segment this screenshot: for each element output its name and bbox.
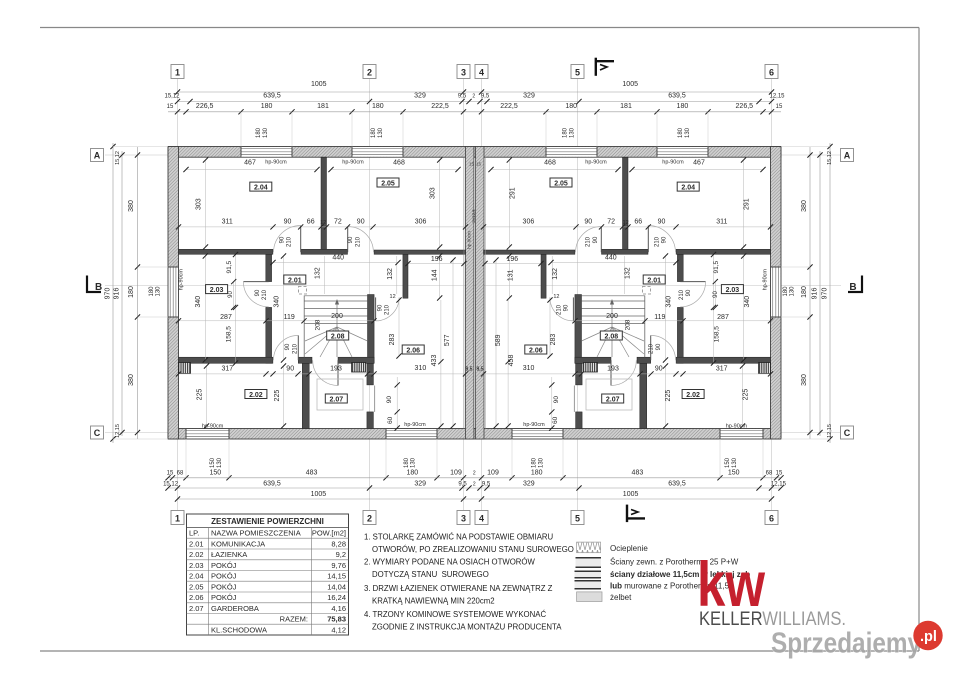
svg-text:180: 180 [531, 470, 543, 477]
svg-text:291: 291 [744, 198, 751, 210]
svg-text:90: 90 [255, 289, 261, 296]
svg-text:200: 200 [331, 313, 343, 320]
svg-text:91,5: 91,5 [226, 260, 233, 273]
svg-text:hp-90cm: hp-90cm [726, 423, 748, 429]
svg-text:226,5: 226,5 [196, 103, 214, 110]
svg-text:144: 144 [432, 269, 439, 281]
svg-text:9,5: 9,5 [458, 481, 467, 487]
svg-text:hp-90cm: hp-90cm [585, 160, 607, 166]
svg-text:15: 15 [167, 471, 174, 477]
svg-text:340: 340 [744, 296, 751, 308]
svg-text:2.07: 2.07 [189, 604, 204, 613]
svg-text:130: 130 [732, 457, 738, 468]
svg-text:196: 196 [431, 256, 443, 263]
svg-text:311: 311 [222, 218, 233, 225]
svg-text:90: 90 [357, 218, 365, 225]
svg-text:9,5: 9,5 [477, 367, 484, 373]
svg-text:467: 467 [244, 160, 256, 167]
svg-text:287: 287 [717, 314, 729, 321]
svg-text:150: 150 [728, 470, 740, 477]
svg-text:12,15: 12,15 [771, 481, 787, 487]
svg-text:109: 109 [450, 470, 462, 477]
svg-text:483: 483 [632, 470, 644, 477]
svg-text:90: 90 [228, 291, 234, 298]
svg-text:222,5: 222,5 [500, 103, 518, 110]
svg-text:15,12: 15,12 [827, 151, 833, 165]
svg-text:15: 15 [167, 104, 174, 110]
svg-text:91,5: 91,5 [713, 260, 720, 273]
svg-text:POKÓJ: POKÓJ [211, 583, 237, 592]
svg-text:9,2: 9,2 [336, 550, 346, 559]
svg-text:310: 310 [415, 365, 427, 372]
svg-text:119: 119 [284, 314, 295, 321]
svg-text:12: 12 [553, 294, 559, 300]
svg-text:12: 12 [320, 220, 326, 226]
svg-text:hp-90cm: hp-90cm [179, 269, 185, 291]
svg-text:2.06: 2.06 [529, 348, 543, 355]
svg-text:306: 306 [523, 218, 535, 225]
svg-text:RAZEM:: RAZEM: [280, 615, 308, 624]
svg-text:193: 193 [607, 366, 619, 373]
svg-text:180: 180 [783, 286, 789, 297]
svg-text:2.06: 2.06 [189, 593, 204, 602]
svg-text:130: 130 [378, 127, 384, 138]
svg-text:4: 4 [479, 68, 484, 78]
svg-text:916: 916 [114, 288, 121, 300]
svg-text:180: 180 [677, 103, 689, 110]
svg-text:ŁAZIENKA: ŁAZIENKA [211, 550, 247, 559]
svg-text:75,83: 75,83 [327, 615, 346, 624]
svg-text:.pl: .pl [920, 629, 937, 645]
svg-text:1005: 1005 [311, 491, 327, 498]
svg-text:2: 2 [367, 68, 372, 78]
svg-text:POKÓJ: POKÓJ [211, 572, 237, 581]
svg-text:2.04: 2.04 [254, 185, 268, 192]
svg-text:210: 210 [262, 289, 268, 300]
svg-text:6: 6 [769, 68, 774, 78]
svg-text:283: 283 [550, 334, 557, 346]
svg-text:2.06: 2.06 [406, 348, 420, 355]
svg-text:150: 150 [725, 457, 731, 468]
svg-text:9,5: 9,5 [482, 481, 491, 487]
svg-text:210: 210 [287, 236, 293, 247]
svg-text:210: 210 [649, 343, 655, 354]
svg-text:hp-90cm: hp-90cm [762, 269, 768, 291]
svg-text:POW.[m2]: POW.[m2] [312, 529, 346, 538]
svg-text:440: 440 [605, 255, 617, 262]
svg-text:467: 467 [693, 160, 705, 167]
svg-text:C: C [94, 428, 101, 438]
svg-text:90: 90 [348, 236, 354, 243]
svg-text:2.05: 2.05 [381, 181, 395, 188]
svg-text:15,12: 15,12 [163, 481, 179, 487]
svg-text:90: 90 [285, 343, 291, 350]
svg-text:90: 90 [713, 291, 719, 298]
svg-text:68: 68 [766, 471, 773, 477]
svg-text:5: 5 [575, 68, 580, 78]
svg-text:639,5: 639,5 [263, 480, 281, 487]
svg-text:287: 287 [220, 314, 232, 321]
svg-text:317: 317 [221, 366, 233, 373]
svg-text:380: 380 [801, 200, 808, 212]
svg-text:66: 66 [307, 218, 315, 225]
svg-text:90: 90 [553, 396, 560, 404]
svg-text:970: 970 [105, 288, 112, 300]
svg-text:1005: 1005 [622, 81, 638, 88]
svg-text:329: 329 [414, 93, 426, 100]
svg-text:2.03: 2.03 [189, 561, 204, 570]
svg-text:90: 90 [584, 218, 592, 225]
svg-text:180: 180 [371, 127, 377, 138]
svg-text:9,5: 9,5 [458, 94, 467, 100]
svg-text:329: 329 [523, 93, 535, 100]
svg-text:200: 200 [606, 313, 618, 320]
svg-text:340: 340 [665, 296, 672, 308]
svg-text:109: 109 [487, 470, 499, 477]
svg-text:12: 12 [623, 220, 629, 226]
svg-text:hp-90cm: hp-90cm [265, 160, 287, 166]
svg-text:210: 210 [679, 289, 685, 300]
svg-text:589: 589 [495, 334, 502, 346]
svg-text:303: 303 [196, 198, 203, 210]
svg-text:180: 180 [565, 103, 577, 110]
svg-text:440: 440 [332, 255, 344, 262]
svg-text:A: A [844, 151, 851, 161]
svg-text:4: 4 [479, 514, 484, 524]
svg-text:483: 483 [306, 470, 318, 477]
svg-text:2.08: 2.08 [331, 334, 345, 341]
svg-text:6: 6 [769, 514, 774, 524]
svg-text:225: 225 [197, 389, 204, 401]
svg-text:468: 468 [393, 160, 405, 167]
svg-text:hp-90cm: hp-90cm [523, 422, 545, 428]
svg-text:132: 132 [552, 268, 559, 280]
svg-text:639,5: 639,5 [668, 93, 686, 100]
svg-text:90: 90 [386, 396, 393, 404]
svg-text:210: 210 [356, 236, 362, 247]
svg-text:OTWORÓW, PO ZREALIZOWANIU STAN: OTWORÓW, PO ZREALIZOWANIU STANU SUROWEGO [372, 545, 574, 554]
svg-text:15,12: 15,12 [115, 151, 121, 165]
svg-text:1: 1 [175, 68, 180, 78]
svg-text:72: 72 [607, 218, 615, 225]
svg-text:Sprzedajemy: Sprzedajemy [771, 628, 921, 660]
svg-text:2: 2 [367, 514, 372, 524]
svg-text:340: 340 [195, 296, 202, 308]
svg-text:hp-90cm: hp-90cm [202, 423, 224, 429]
svg-text:303: 303 [430, 187, 437, 199]
svg-text:226,5: 226,5 [736, 103, 754, 110]
svg-text:2.05: 2.05 [189, 583, 204, 592]
svg-text:180: 180 [404, 457, 410, 468]
svg-text:GARDEROBA: GARDEROBA [211, 604, 259, 613]
svg-text:15: 15 [476, 162, 482, 167]
svg-text:1. STOLARKĘ ZAMÓWIĆ NA PODSTAW: 1. STOLARKĘ ZAMÓWIĆ NA PODSTAWIE OBMIARU [364, 533, 554, 542]
svg-text:90: 90 [279, 236, 285, 243]
svg-text:B: B [849, 282, 856, 293]
svg-text:310: 310 [523, 365, 535, 372]
svg-text:208: 208 [315, 319, 322, 330]
svg-text:222,5: 222,5 [431, 103, 449, 110]
svg-text:90: 90 [377, 304, 383, 311]
svg-text:283: 283 [389, 334, 396, 346]
svg-text:3: 3 [461, 514, 466, 524]
svg-text:2.07: 2.07 [329, 397, 343, 404]
svg-text:12,15: 12,15 [115, 424, 121, 438]
svg-text:5: 5 [575, 514, 580, 524]
svg-text:180: 180 [128, 286, 135, 298]
svg-text:970: 970 [822, 288, 829, 300]
svg-text:2.07: 2.07 [606, 397, 620, 404]
svg-text:2.04: 2.04 [189, 572, 204, 581]
svg-text:291: 291 [509, 187, 516, 199]
svg-text:639,5: 639,5 [263, 93, 281, 100]
svg-text:132: 132 [315, 267, 322, 279]
svg-text:9,76: 9,76 [331, 561, 346, 570]
svg-text:210: 210 [385, 304, 391, 315]
svg-text:577: 577 [444, 334, 451, 346]
svg-text:żelbet: żelbet [610, 593, 632, 602]
svg-text:NAZWA POMIESZCZENIA: NAZWA POMIESZCZENIA [211, 529, 301, 538]
svg-text:1: 1 [175, 514, 180, 524]
svg-text:2: 2 [472, 94, 475, 100]
svg-text:225: 225 [742, 389, 749, 401]
svg-text:193: 193 [330, 366, 342, 373]
svg-text:hp-90cm: hp-90cm [342, 160, 364, 166]
svg-text:16,24: 16,24 [327, 593, 346, 602]
svg-text:317: 317 [716, 366, 728, 373]
svg-text:130: 130 [411, 457, 417, 468]
svg-text:468: 468 [544, 160, 556, 167]
svg-text:180: 180 [149, 286, 155, 297]
svg-text:90: 90 [655, 366, 663, 373]
svg-text:180: 180 [406, 470, 418, 477]
svg-text:132: 132 [387, 268, 394, 280]
svg-text:KOMUNIKACJA: KOMUNIKACJA [211, 540, 265, 549]
svg-text:12,15: 12,15 [827, 424, 833, 438]
svg-text:3: 3 [461, 68, 466, 78]
svg-text:90: 90 [593, 236, 599, 243]
svg-text:380: 380 [128, 374, 135, 386]
svg-text:225: 225 [274, 390, 281, 402]
svg-text:90: 90 [656, 343, 662, 350]
svg-text:hp-90cm: hp-90cm [662, 160, 684, 166]
svg-text:ZESTAWIENIE POWIERZCHNI: ZESTAWIENIE POWIERZCHNI [211, 517, 324, 526]
svg-text:2.04: 2.04 [681, 185, 695, 192]
svg-text:210: 210 [556, 304, 562, 315]
svg-text:2.01: 2.01 [288, 278, 302, 285]
svg-text:14,04: 14,04 [327, 583, 346, 592]
svg-text:180: 180 [563, 127, 569, 138]
svg-text:2.08: 2.08 [604, 334, 618, 341]
svg-text:150: 150 [210, 457, 216, 468]
svg-text:3. DRZWI ŁAZIENEK OTWIERANE NA: 3. DRZWI ŁAZIENEK OTWIERANE NA ZEWNĄTRZ … [364, 584, 553, 593]
svg-text:210: 210 [292, 343, 298, 354]
svg-text:2.02: 2.02 [249, 392, 263, 399]
svg-text:130: 130 [263, 127, 269, 138]
svg-text:130: 130 [569, 127, 575, 138]
svg-text:1005: 1005 [623, 491, 639, 498]
svg-text:311: 311 [716, 218, 727, 225]
svg-text:916: 916 [812, 288, 819, 300]
svg-text:130: 130 [685, 127, 691, 138]
svg-text:90: 90 [662, 236, 668, 243]
svg-text:90: 90 [686, 289, 692, 296]
svg-text:KL.SCHODOWA: KL.SCHODOWA [211, 626, 267, 635]
svg-text:306: 306 [415, 218, 427, 225]
svg-text:180: 180 [801, 286, 808, 298]
svg-text:2: 2 [473, 471, 476, 477]
svg-text:4,12: 4,12 [331, 626, 346, 635]
svg-text:225: 225 [665, 390, 672, 402]
svg-text:2x12,5: 2x12,5 [471, 209, 476, 223]
svg-text:329: 329 [414, 480, 426, 487]
svg-text:210: 210 [654, 236, 660, 247]
svg-text:2.02: 2.02 [189, 550, 204, 559]
svg-text:2.01: 2.01 [189, 540, 204, 549]
svg-text:LP.: LP. [189, 529, 199, 538]
svg-text:2. WYMIARY PODANE NA OSIACH OT: 2. WYMIARY PODANE NA OSIACH OTWORÓW [364, 558, 535, 567]
svg-text:340: 340 [274, 296, 281, 308]
svg-text:1005: 1005 [311, 81, 327, 88]
svg-text:130: 130 [790, 286, 796, 297]
svg-text:8,28: 8,28 [331, 540, 346, 549]
svg-text:158,5: 158,5 [714, 326, 721, 343]
svg-text:4. TRZONY KOMINOWE SYSTEMOWE W: 4. TRZONY KOMINOWE SYSTEMOWE WYKONAĆ [364, 610, 546, 619]
svg-text:66: 66 [634, 218, 642, 225]
svg-text:180: 180 [261, 103, 273, 110]
svg-text:380: 380 [801, 374, 808, 386]
svg-text:KRATKĄ NAWIEWNĄ MIN 220cm2: KRATKĄ NAWIEWNĄ MIN 220cm2 [372, 597, 495, 606]
svg-text:hp-90cm: hp-90cm [466, 231, 471, 249]
svg-text:130: 130 [156, 286, 162, 297]
svg-text:180: 180 [678, 127, 684, 138]
svg-text:2: 2 [473, 481, 476, 487]
svg-text:C: C [844, 428, 851, 438]
svg-text:180: 180 [532, 457, 538, 468]
svg-text:158,5: 158,5 [225, 326, 232, 343]
svg-text:9,5: 9,5 [481, 94, 490, 100]
svg-text:9,5: 9,5 [466, 367, 473, 373]
svg-text:2.03: 2.03 [726, 287, 740, 294]
svg-text:Ocieplenie: Ocieplenie [610, 544, 648, 553]
svg-text:14,15: 14,15 [327, 572, 346, 581]
svg-text:150: 150 [209, 470, 221, 477]
svg-text:ZGODNIE Z INSTRUKCJA MONTAŻU P: ZGODNIE Z INSTRUKCJA MONTAŻU PRODUCENTA [372, 623, 562, 632]
svg-text:15,12: 15,12 [164, 94, 180, 100]
svg-text:POKÓJ: POKÓJ [211, 561, 237, 570]
svg-text:130: 130 [217, 457, 223, 468]
svg-text:POKÓJ: POKÓJ [211, 593, 237, 602]
svg-text:131: 131 [507, 269, 514, 281]
svg-text:68: 68 [177, 471, 184, 477]
svg-text:12: 12 [390, 294, 396, 300]
svg-text:60: 60 [387, 416, 394, 424]
svg-text:181: 181 [317, 103, 329, 110]
svg-text:12,15: 12,15 [769, 94, 785, 100]
svg-text:2.02: 2.02 [686, 392, 700, 399]
svg-text:A: A [94, 151, 101, 161]
svg-text:2.01: 2.01 [647, 278, 661, 285]
svg-text:639,5: 639,5 [668, 480, 686, 487]
svg-text:181: 181 [620, 103, 632, 110]
svg-text:458: 458 [508, 355, 515, 367]
svg-text:B: B [95, 282, 102, 293]
svg-text:90: 90 [658, 218, 666, 225]
svg-text:208: 208 [624, 319, 631, 330]
svg-text:DOTYCZĄ STANU SUROWEGO: DOTYCZĄ STANU SUROWEGO [372, 570, 489, 579]
svg-text:180: 180 [372, 103, 384, 110]
svg-text:72: 72 [334, 218, 342, 225]
svg-text:90: 90 [564, 304, 570, 311]
svg-text:132: 132 [624, 267, 631, 279]
svg-text:hp-90cm: hp-90cm [404, 422, 426, 428]
svg-text:2.03: 2.03 [210, 287, 224, 294]
svg-text:15: 15 [776, 471, 783, 477]
svg-text:15: 15 [469, 162, 475, 167]
svg-text:380: 380 [128, 200, 135, 212]
svg-text:196: 196 [506, 256, 518, 263]
svg-text:119: 119 [654, 314, 665, 321]
svg-text:90: 90 [286, 366, 294, 373]
svg-text:4,16: 4,16 [331, 604, 346, 613]
svg-text:433: 433 [431, 355, 438, 367]
svg-text:60: 60 [552, 416, 559, 424]
svg-text:130: 130 [538, 457, 544, 468]
svg-text:2.05: 2.05 [554, 181, 568, 188]
svg-text:180: 180 [256, 127, 262, 138]
svg-text:90: 90 [284, 218, 292, 225]
svg-text:210: 210 [586, 236, 592, 247]
svg-text:15: 15 [776, 104, 783, 110]
svg-text:329: 329 [523, 480, 535, 487]
